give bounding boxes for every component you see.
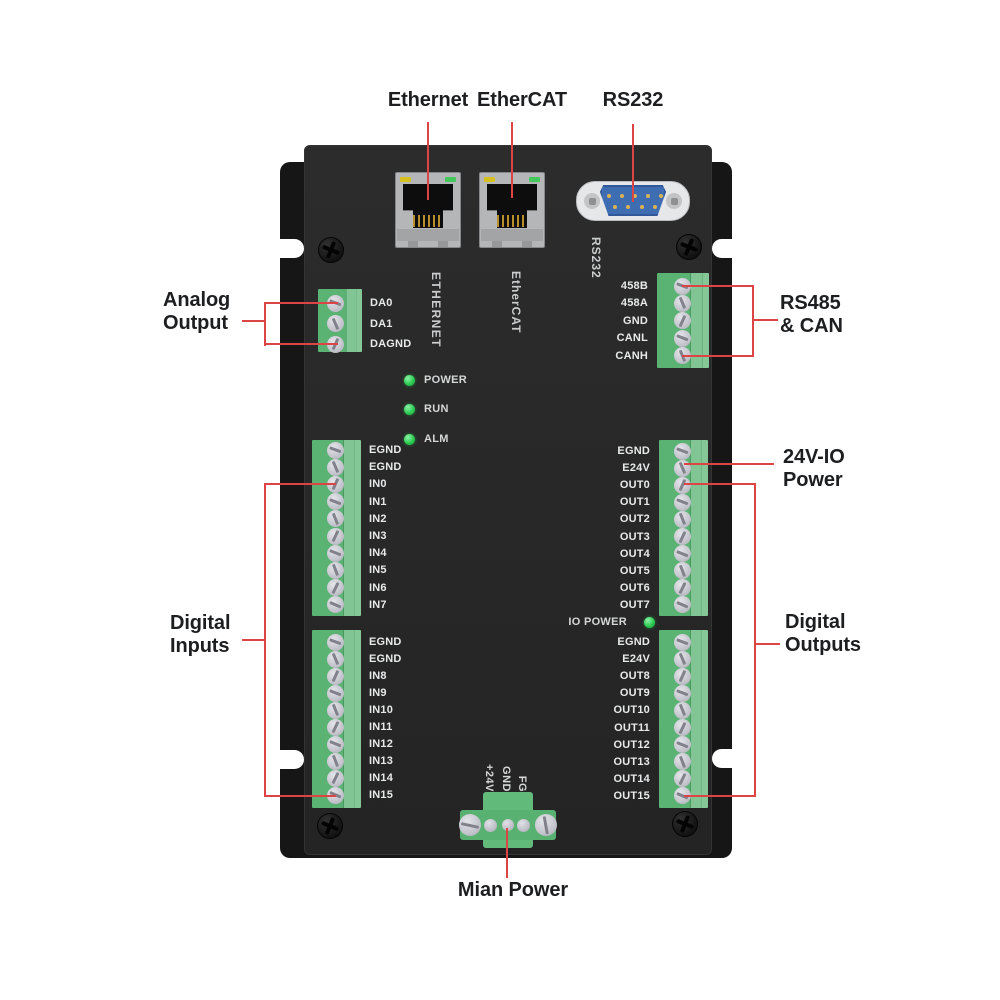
pin-label: OUT13 xyxy=(614,755,650,769)
mounting-slot xyxy=(712,239,758,258)
terminal-screw xyxy=(674,545,691,562)
label-main-power: Mian Power xyxy=(458,879,568,902)
terminal-screw xyxy=(327,459,344,476)
db9-nut xyxy=(584,193,600,209)
pin-label: OUT7 xyxy=(620,598,650,612)
silkscreen-ethercat: EtherCAT xyxy=(509,271,523,333)
terminal-screw xyxy=(327,685,344,702)
terminal-screw xyxy=(674,634,691,651)
terminal-screw xyxy=(327,668,344,685)
port-led-yellow xyxy=(484,177,495,182)
pin-label: DA1 xyxy=(370,317,393,331)
pin-label: IN4 xyxy=(369,546,387,560)
terminal-screw xyxy=(327,753,344,770)
pin-label: IN10 xyxy=(369,703,393,717)
pin-label: IN8 xyxy=(369,669,387,683)
pin-label: OUT8 xyxy=(620,669,650,683)
power-pin xyxy=(484,819,497,832)
rj45-base xyxy=(481,229,543,241)
label-analog-output: Analog Output xyxy=(163,289,230,335)
annotation-line xyxy=(264,795,336,797)
rj45-foot xyxy=(438,241,448,247)
pin-label: OUT15 xyxy=(614,789,650,803)
pin-label: OUT5 xyxy=(620,564,650,578)
panel-screw xyxy=(318,237,344,263)
status-led-row: RUN xyxy=(404,403,449,415)
terminal-screw xyxy=(327,719,344,736)
annotation-line xyxy=(264,343,338,345)
rj45-contacts xyxy=(413,215,443,227)
terminal-screw xyxy=(327,579,344,596)
port-led-green xyxy=(529,177,540,182)
terminal-block-body xyxy=(312,630,361,808)
io-power-led xyxy=(644,617,655,628)
annotation-line xyxy=(264,483,266,797)
terminal-screw xyxy=(674,685,691,702)
terminal-block-body xyxy=(659,440,708,616)
pin-label: GND xyxy=(623,314,648,328)
power-led xyxy=(404,375,415,386)
pin-label: OUT1 xyxy=(620,495,650,509)
pin-label: IN2 xyxy=(369,512,387,526)
annotation-line xyxy=(427,122,429,200)
pin-label: E24V xyxy=(622,652,650,666)
terminal-screw xyxy=(327,315,344,332)
annotation-line xyxy=(264,302,266,346)
terminal-block-body xyxy=(657,273,709,368)
terminal-screw xyxy=(327,442,344,459)
pin-label: IN1 xyxy=(369,495,387,509)
pin-label: EGND xyxy=(369,635,402,649)
annotation-line xyxy=(752,285,754,357)
pin-label: E24V xyxy=(622,461,650,475)
silkscreen-ethernet: ETHERNET xyxy=(429,272,443,348)
terminal-screw xyxy=(674,477,691,494)
terminal-screw xyxy=(674,770,691,787)
rj45-foot xyxy=(522,241,532,247)
pin-label: IN5 xyxy=(369,563,387,577)
terminal-screw xyxy=(674,736,691,753)
device-diagram: ETHERNET EtherCAT RS232 POWER RUN ALM IO… xyxy=(0,0,1000,1000)
label-ethercat: EtherCAT xyxy=(477,89,567,112)
rj45-foot xyxy=(492,241,502,247)
pin-label: OUT10 xyxy=(614,703,650,717)
terminal-block-body xyxy=(312,440,361,616)
main-power-connector xyxy=(460,790,556,850)
terminal-screw xyxy=(674,702,691,719)
power-led-label: POWER xyxy=(424,374,467,386)
annotation-line xyxy=(242,320,266,322)
annotation-line xyxy=(264,483,336,485)
terminal-screw xyxy=(674,330,691,347)
port-led-green xyxy=(445,177,456,182)
terminal-screw xyxy=(674,579,691,596)
pin-label: CANL xyxy=(617,331,648,345)
pin-label: EGND xyxy=(369,443,402,457)
power-pin-label-24v: +24V xyxy=(483,764,495,792)
panel-screw xyxy=(672,811,698,837)
power-flange-screw xyxy=(459,814,481,836)
panel-screw xyxy=(317,813,343,839)
pin-label: EGND xyxy=(617,635,650,649)
terminal-screw xyxy=(327,493,344,510)
terminal-screw xyxy=(327,634,344,651)
pin-label: EGND xyxy=(369,652,402,666)
power-flange-screw xyxy=(535,814,557,836)
terminal-screw xyxy=(674,295,691,312)
status-led-row: ALM xyxy=(404,433,449,445)
pin-label: 458B xyxy=(621,279,648,293)
label-ethernet: Ethernet xyxy=(388,89,468,112)
pin-label: DAGND xyxy=(370,337,411,351)
terminal-screw xyxy=(327,736,344,753)
pin-label: IN3 xyxy=(369,529,387,543)
terminal-screw xyxy=(674,511,691,528)
label-digital-inputs: Digital Inputs xyxy=(170,612,230,658)
annotation-line xyxy=(684,483,756,485)
annotation-line xyxy=(754,643,780,645)
pin-label: IN12 xyxy=(369,737,393,751)
terminal-block-inputs-lower: EGNDEGNDIN8IN9IN10IN11IN12IN13IN14IN15 xyxy=(312,630,361,808)
annotation-line xyxy=(754,483,756,797)
port-led-yellow xyxy=(400,177,411,182)
status-led-row: POWER xyxy=(404,374,467,386)
terminal-screw xyxy=(327,510,344,527)
annotation-line xyxy=(264,302,338,304)
pin-label: IN0 xyxy=(369,477,387,491)
terminal-screw xyxy=(327,702,344,719)
label-digital-outputs: Digital Outputs xyxy=(785,611,861,657)
terminal-block-inputs-upper: EGNDEGNDIN0IN1IN2IN3IN4IN5IN6IN7 xyxy=(312,440,361,616)
run-led xyxy=(404,404,415,415)
label-rs232: RS232 xyxy=(603,89,664,112)
annotation-line xyxy=(752,319,778,321)
annotation-line xyxy=(682,285,754,287)
pin-label: IN7 xyxy=(369,598,387,612)
annotation-line xyxy=(684,463,774,465)
terminal-block-outputs-lower: EGNDE24VOUT8OUT9OUT10OUT11OUT12OUT13OUT1… xyxy=(659,630,708,808)
pin-label: IN13 xyxy=(369,754,393,768)
annotation-line xyxy=(242,639,266,641)
pin-label: IN6 xyxy=(369,581,387,595)
pin-label: IN9 xyxy=(369,686,387,700)
annotation-line xyxy=(506,828,508,878)
terminal-block-body xyxy=(659,630,708,808)
rj45-contacts xyxy=(497,215,527,227)
front-panel xyxy=(304,145,712,855)
terminal-screw xyxy=(674,719,691,736)
terminal-screw xyxy=(674,753,691,770)
terminal-screw xyxy=(674,562,691,579)
pin-label: CANH xyxy=(615,349,648,363)
terminal-screw xyxy=(674,596,691,613)
terminal-screw xyxy=(327,562,344,579)
annotation-line xyxy=(511,122,513,198)
label-rs485-can: RS485 & CAN xyxy=(780,292,843,338)
alm-led-label: ALM xyxy=(424,433,449,445)
terminal-screw xyxy=(327,770,344,787)
annotation-line xyxy=(684,795,756,797)
power-pin xyxy=(517,819,530,832)
silkscreen-rs232: RS232 xyxy=(589,237,603,279)
power-pin xyxy=(502,819,514,831)
alm-led xyxy=(404,434,415,445)
rj45-base xyxy=(397,229,459,241)
pin-label: OUT0 xyxy=(620,478,650,492)
terminal-screw xyxy=(327,596,344,613)
io-power-led-label: IO POWER xyxy=(500,616,627,628)
terminal-screw xyxy=(674,668,691,685)
terminal-screw xyxy=(674,494,691,511)
pin-label: EGND xyxy=(617,444,650,458)
pin-label: OUT6 xyxy=(620,581,650,595)
annotation-line xyxy=(682,355,754,357)
terminal-block-outputs-upper: EGNDE24VOUT0OUT1OUT2OUT3OUT4OUT5OUT6OUT7 xyxy=(659,440,708,616)
power-pin-label-fg: FG xyxy=(516,776,528,792)
pin-label: OUT4 xyxy=(620,547,650,561)
terminal-block-rs485-can: 458B458AGNDCANLCANH xyxy=(657,273,709,368)
pin-label: IN15 xyxy=(369,788,393,802)
power-pin-label-gnd: GND xyxy=(500,766,512,792)
terminal-screw xyxy=(674,528,691,545)
annotation-line xyxy=(632,124,634,202)
terminal-screw xyxy=(674,651,691,668)
terminal-screw xyxy=(327,651,344,668)
pin-label: OUT11 xyxy=(614,721,650,735)
pin-label: IN14 xyxy=(369,771,393,785)
mounting-slot xyxy=(258,239,304,258)
rj45-foot xyxy=(408,241,418,247)
pin-label: IN11 xyxy=(369,720,392,734)
label-24v-io-power: 24V-IO Power xyxy=(783,446,845,492)
pin-label: EGND xyxy=(369,460,402,474)
terminal-screw xyxy=(674,443,691,460)
pin-label: OUT14 xyxy=(614,772,650,786)
pin-label: OUT12 xyxy=(614,738,650,752)
mounting-slot xyxy=(712,749,758,768)
panel-screw xyxy=(676,234,702,260)
pin-label: OUT9 xyxy=(620,686,650,700)
pin-label: OUT2 xyxy=(620,512,650,526)
terminal-screw xyxy=(327,528,344,545)
run-led-label: RUN xyxy=(424,403,449,415)
pin-label: DA0 xyxy=(370,296,393,310)
pin-label: 458A xyxy=(621,296,648,310)
terminal-screw xyxy=(674,312,691,329)
db9-nut xyxy=(666,193,682,209)
terminal-screw xyxy=(327,545,344,562)
pin-label: OUT3 xyxy=(620,530,650,544)
